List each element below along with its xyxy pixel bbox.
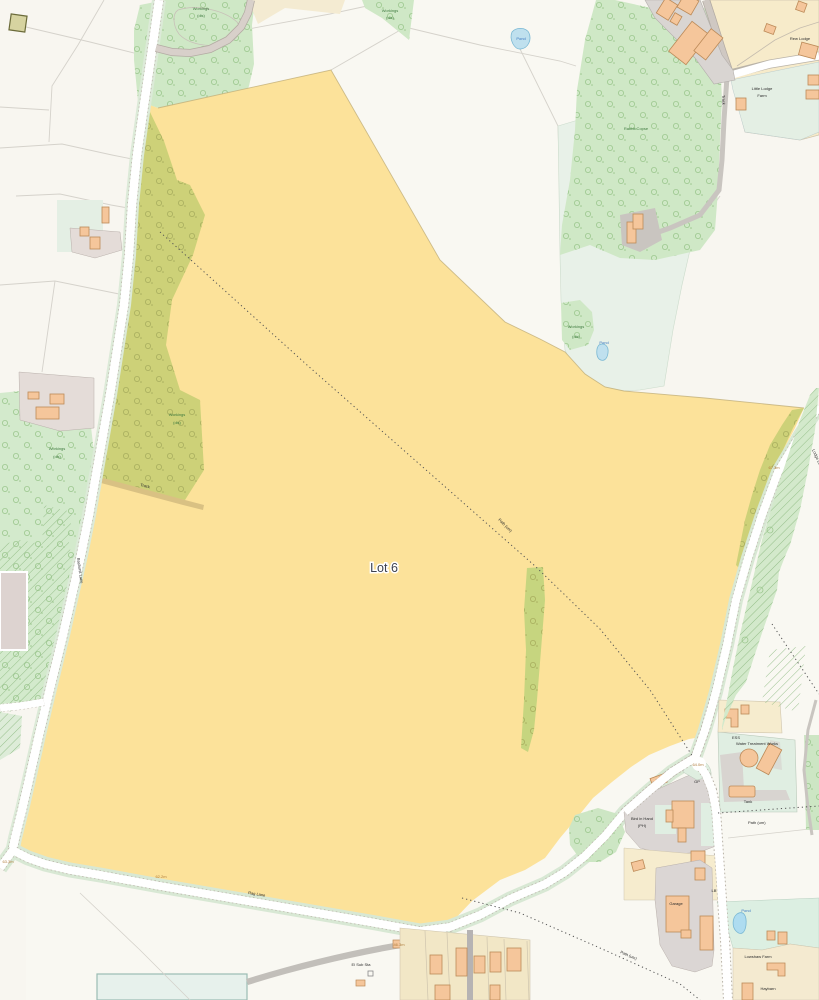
svg-text:(dis): (dis)	[53, 454, 61, 459]
svg-text:(dis): (dis)	[173, 420, 181, 425]
svg-text:Rew Lodge: Rew Lodge	[790, 36, 811, 41]
svg-text:LB: LB	[712, 888, 717, 893]
svg-text:Lot 6: Lot 6	[370, 561, 398, 575]
svg-text:Workings: Workings	[382, 8, 399, 13]
svg-text:67.3m: 67.3m	[768, 465, 780, 470]
svg-text:62.2m: 62.2m	[155, 874, 167, 879]
svg-text:Rabbit Copse: Rabbit Copse	[624, 126, 649, 131]
svg-text:Bird in Hand: Bird in Hand	[631, 816, 653, 821]
svg-text:Little Lodge: Little Lodge	[752, 86, 773, 91]
svg-text:Tank: Tank	[744, 799, 752, 804]
svg-text:Pond: Pond	[599, 340, 608, 345]
svg-text:Workings: Workings	[169, 412, 186, 417]
svg-text:Pond: Pond	[516, 36, 525, 41]
svg-text:Workings: Workings	[193, 6, 210, 11]
svg-text:El Sub Sta: El Sub Sta	[352, 962, 372, 967]
svg-text:Farm: Farm	[757, 93, 767, 98]
svg-text:63.3m: 63.3m	[2, 859, 14, 864]
svg-text:Track: Track	[721, 95, 726, 105]
svg-text:GP: GP	[694, 779, 700, 784]
svg-text:(dis): (dis)	[386, 15, 394, 20]
svg-text:(PH): (PH)	[638, 823, 647, 828]
svg-text:(dis): (dis)	[197, 13, 205, 18]
svg-text:Workings: Workings	[568, 324, 585, 329]
svg-text:46.3m: 46.3m	[393, 942, 405, 947]
svg-text:(dis): (dis)	[572, 334, 580, 339]
svg-text:Workings: Workings	[49, 446, 66, 451]
svg-text:Haybarn: Haybarn	[760, 986, 775, 991]
svg-text:64.0m: 64.0m	[692, 762, 704, 767]
svg-text:ESS: ESS	[732, 735, 740, 740]
svg-text:Water Treatment Works: Water Treatment Works	[736, 741, 778, 746]
svg-text:Pond: Pond	[741, 908, 750, 913]
svg-text:Lowshaw Farm: Lowshaw Farm	[744, 954, 772, 959]
svg-text:Path (um): Path (um)	[748, 820, 766, 825]
svg-text:Garage: Garage	[669, 901, 683, 906]
